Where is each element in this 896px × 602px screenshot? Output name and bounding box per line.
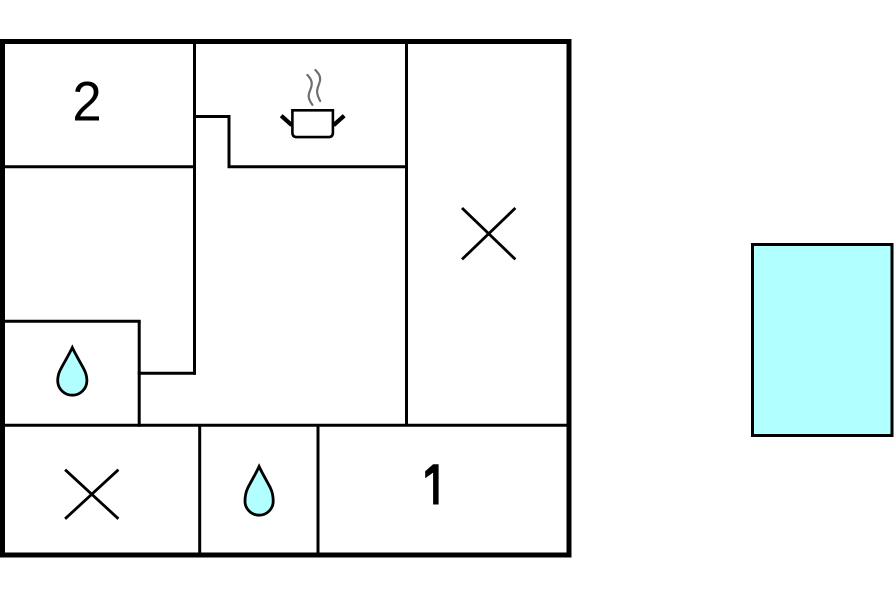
svg-text:2: 2 <box>72 70 101 133</box>
